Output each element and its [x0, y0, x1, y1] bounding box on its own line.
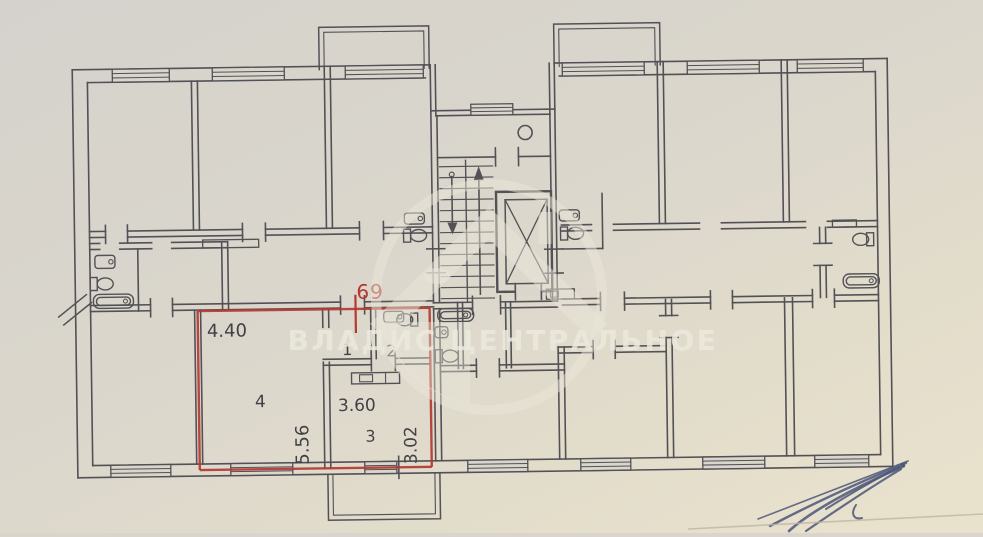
- living-room-width-label: 4.40: [207, 320, 247, 342]
- floor-plan: 69 4.40 4 5.56 3.60 3 3.02 1 2 ВЛАДИС ЦЕ…: [0, 0, 983, 533]
- kitchen-number-label: 3: [365, 427, 375, 446]
- scanned-floor-plan-photo: 69 4.40 4 5.56 3.60 3 3.02 1 2 ВЛАДИС ЦЕ…: [0, 0, 983, 533]
- kitchen-depth-label: 3.02: [401, 426, 422, 464]
- living-room-number-label: 4: [255, 392, 266, 412]
- watermark-text: ВЛАДИС ЦЕНТРАЛЬНОЕ: [288, 324, 719, 357]
- kitchen-width-label: 3.60: [338, 396, 376, 417]
- living-room-depth-label: 5.56: [292, 424, 314, 464]
